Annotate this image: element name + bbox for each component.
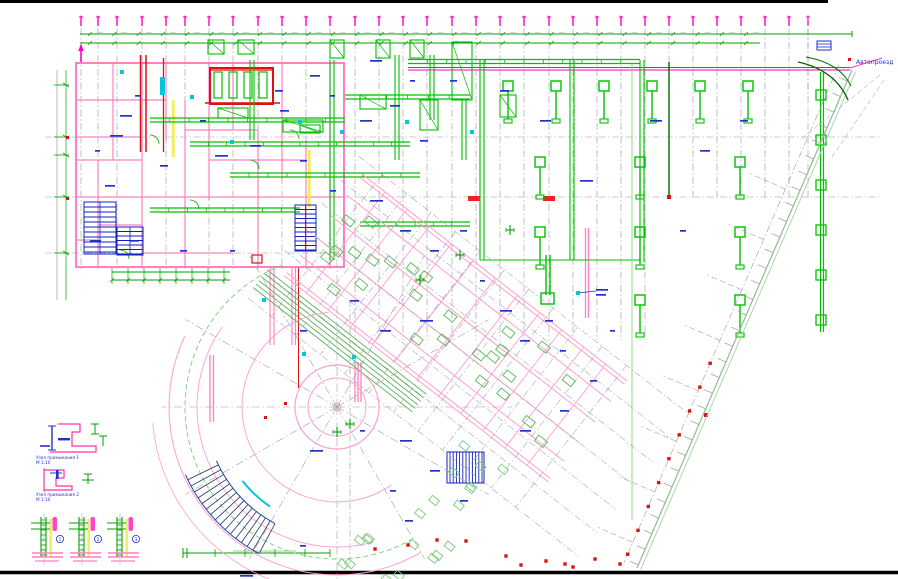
- wall-section-number-3: 3: [132, 535, 139, 543]
- detail-1-scale: М 1:10: [36, 460, 51, 465]
- wall-section-details: 1 2 3: [31, 513, 140, 565]
- cad-floor-plan-canvas: Автопроезд Узел примыкания 1 М 1:10 Узел…: [0, 0, 898, 579]
- site-arc-2: [806, 57, 851, 86]
- sheet-frame: [0, 2, 898, 573]
- red-marker-dot: [848, 58, 851, 61]
- detail-2-scale: М 1:10: [36, 497, 51, 502]
- annotation-marks: [90, 60, 748, 577]
- diagonal-wing-plan: [246, 155, 689, 557]
- svg-text:3: 3: [135, 537, 138, 543]
- svg-text:1: 1: [59, 537, 62, 543]
- wall-section-number-2: 2: [94, 535, 101, 543]
- stair-hatches: [84, 202, 484, 483]
- left-wing-walls: [76, 58, 882, 422]
- detail-node-1: Узел примыкания 1 М 1:10: [36, 424, 107, 465]
- site-boundary-line: [373, 64, 884, 569]
- detail-node-2: Узел примыкания 2 М 1:10: [36, 468, 94, 502]
- hatched-legend-block-icon: [817, 41, 831, 50]
- svg-text:2: 2: [97, 537, 100, 543]
- wall-section-number-1: 1: [56, 535, 63, 543]
- red-structure-lines: [141, 55, 556, 388]
- floor-plan-drawing: Автопроезд Узел примыкания 1 М 1:10 Узел…: [0, 0, 898, 579]
- road-label: Автопроезд: [856, 59, 893, 66]
